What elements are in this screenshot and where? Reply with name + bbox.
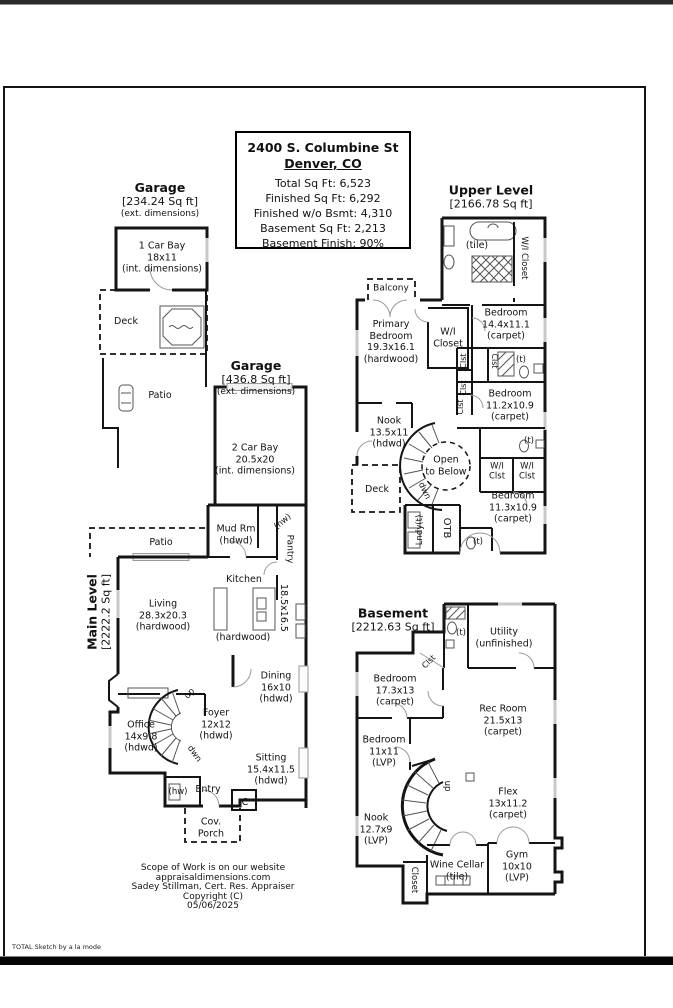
open-to-below-label: Open to Below — [425, 454, 466, 477]
dining-room-label: Dining 16x10 (hdwd) — [259, 671, 292, 706]
stat-basement-finish: Basement Finish: 90% — [237, 236, 409, 251]
toilet-label-basement: (t) — [456, 628, 466, 638]
wi-closet-label: W/I Closet — [433, 326, 463, 349]
stat-finished-sqft: Finished Sq Ft: 6,292 — [237, 191, 409, 206]
bath-tile-label: (tile) — [466, 240, 488, 252]
patio-label-1: Patio — [148, 390, 171, 402]
balcony-label: Balcony — [373, 284, 409, 295]
wi-clst-label-b: W/I Clst — [519, 462, 535, 483]
stat-basement-sqft: Basement Sq Ft: 2,213 — [237, 221, 409, 236]
flex-room-label: Flex 13x11.2 (carpet) — [489, 787, 528, 822]
toilet-label-3: (t) — [473, 537, 483, 547]
basement-header: Basement [2212.63 Sq ft] — [351, 606, 434, 635]
nook-upper-label: Nook 13.5x11 (hdwd) — [370, 416, 409, 451]
wi-clst-label-a: W/I Clst — [489, 462, 505, 483]
bedroom-11-label: Bedroom 11x11 (LVP) — [363, 735, 406, 770]
city-line: Denver, CO — [237, 156, 409, 171]
patio-label-2: Patio — [149, 537, 172, 549]
primary-bedroom-label: Primary Bedroom 19.3x16.1 (hardwood) — [364, 319, 418, 365]
mud-room-label: Mud Rm (hdwd) — [216, 523, 255, 546]
kitchen-label: Kitchen — [226, 574, 262, 586]
bedroom-173-label: Bedroom 17.3x13 (carpet) — [374, 674, 417, 709]
footer-line-date: 05/06/2025 — [132, 902, 295, 912]
garage1-bay-label: 1 Car Bay 18x11 (int. dimensions) — [122, 241, 202, 276]
clst-label-3: Clst — [456, 399, 466, 414]
wine-cellar-label: Wine Cellar (tile) — [430, 859, 484, 882]
laundry-label: Lndy(t) — [415, 515, 425, 546]
closet-basement-label: Closet — [409, 867, 419, 894]
clst-label-4: Clst — [489, 353, 499, 368]
deck-label-main: Deck — [114, 316, 138, 328]
summary-box: 2400 S. Columbine St Denver, CO Total Sq… — [235, 131, 411, 249]
office-label: Office 14x9.8 (hdwd) — [124, 720, 157, 755]
nook-basement-label: Nook 12.7x9 (LVP) — [360, 813, 393, 848]
garage1-header: Garage [234.24 Sq ft] (ext. dimensions) — [121, 180, 199, 220]
kitchen-dims-label: 18.5x16.5 — [277, 584, 289, 632]
sketch-branding: TOTAL Sketch by a la mode — [12, 943, 101, 951]
toilet-label-2: (t) — [524, 436, 534, 446]
main-level-header: Main Level [2222.2 Sq ft] — [85, 574, 114, 650]
appraiser-footer: Scope of Work is on our website appraisa… — [132, 864, 295, 912]
covered-porch-label: Cov. Porch — [198, 816, 224, 839]
closet-c-label: C — [242, 797, 249, 809]
garage2-header: Garage [436.8 Sq ft] (ext. dimensions) — [217, 358, 295, 398]
clst-label-2: Clst — [459, 380, 469, 395]
bedroom-144-label: Bedroom 14.4x11.1 (carpet) — [482, 308, 530, 343]
sitting-room-label: Sitting 15.4x11.5 (hdwd) — [247, 753, 295, 788]
floorplan-sketch-page: 2400 S. Columbine St Denver, CO Total Sq… — [0, 0, 673, 1008]
entry-label: Entry — [195, 784, 220, 796]
garage2-bay-label: 2 Car Bay 20.5x20 (int. dimensions) — [215, 443, 295, 478]
foyer-label: Foyer 12x12 (hdwd) — [199, 708, 232, 743]
rec-room-label: Rec Room 21.5x13 (carpet) — [479, 704, 526, 739]
address-line: 2400 S. Columbine St — [237, 140, 409, 155]
bedroom-113-label: Bedroom 11.3x10.9 (carpet) — [489, 491, 537, 526]
stat-finished-wo-bsmt: Finished w/o Bsmt: 4,310 — [237, 206, 409, 221]
upper-level-header: Upper Level [2166.78 Sq ft] — [449, 183, 533, 212]
otb-label: OTB — [440, 518, 452, 539]
living-room-label: Living 28.3x20.3 (hardwood) — [136, 599, 190, 634]
gym-label: Gym 10x10 (LVP) — [502, 850, 532, 885]
utility-label: Utility (unfinished) — [476, 626, 533, 649]
wi-closet-top-label: W/I Closet — [519, 237, 529, 280]
stat-total-sqft: Total Sq Ft: 6,523 — [237, 176, 409, 191]
toilet-label-1: (t) — [516, 355, 526, 365]
pantry-label: Pantry — [284, 535, 295, 564]
clst-label-1: Clst — [459, 353, 469, 368]
bedroom-112-label: Bedroom 11.2x10.9 (carpet) — [486, 389, 534, 424]
deck-label-upper: Deck — [365, 484, 389, 496]
stair-up-label-basement: up — [442, 781, 452, 792]
kitchen-floor-label: (hardwood) — [216, 632, 270, 644]
hw-closet-label-2: (hw) — [169, 787, 188, 797]
